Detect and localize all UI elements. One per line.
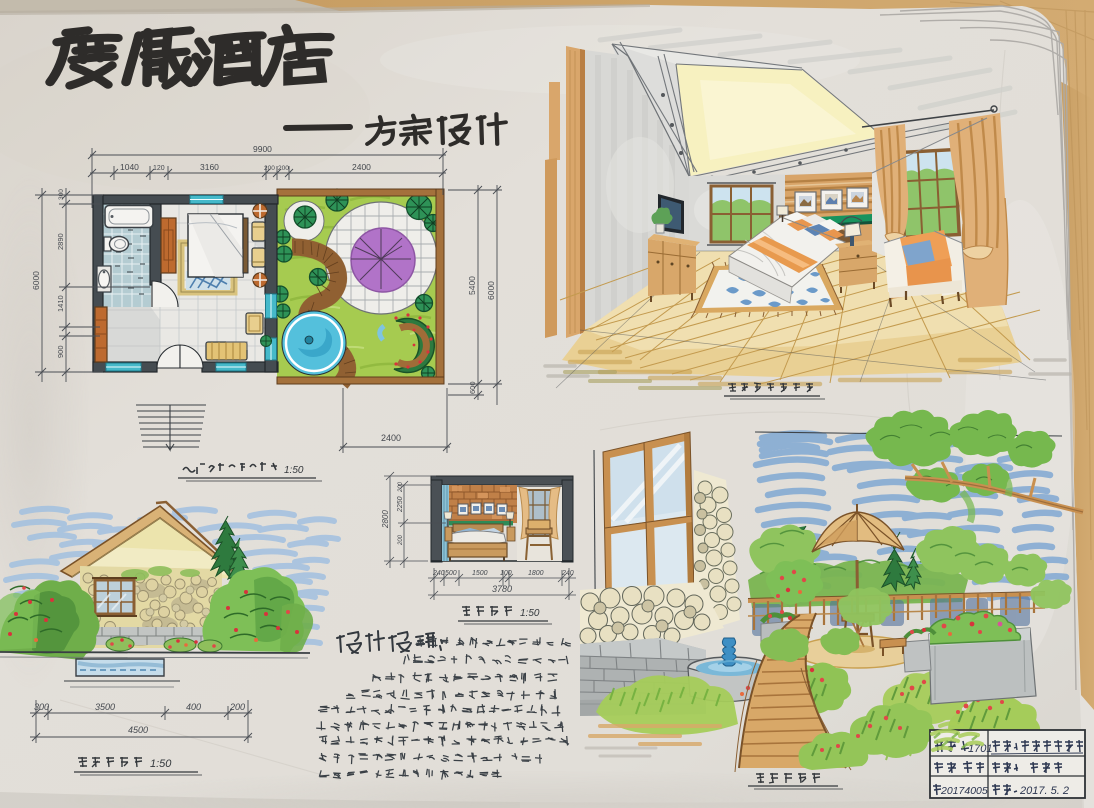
- svg-text:100: 100: [500, 570, 512, 577]
- svg-text:3780: 3780: [492, 584, 512, 594]
- svg-text:6000: 6000: [31, 271, 41, 290]
- svg-text:240: 240: [432, 570, 445, 577]
- svg-text:500: 500: [445, 570, 457, 577]
- svg-text:1:50: 1:50: [284, 465, 304, 476]
- svg-text:20174005: 20174005: [940, 785, 988, 797]
- svg-text:1410: 1410: [56, 295, 65, 312]
- svg-text:3500: 3500: [95, 702, 115, 712]
- svg-text:6000: 6000: [486, 281, 496, 300]
- svg-text:1500: 1500: [472, 570, 488, 577]
- svg-text:200: 200: [229, 702, 245, 712]
- svg-text:200: 200: [278, 165, 289, 172]
- svg-text:5400: 5400: [467, 276, 477, 295]
- svg-text:120: 120: [153, 165, 165, 172]
- svg-text:400: 400: [186, 702, 201, 712]
- svg-text:2800: 2800: [381, 510, 390, 529]
- svg-text:4500: 4500: [128, 725, 148, 735]
- svg-text:1800: 1800: [528, 570, 544, 577]
- svg-text:200: 200: [264, 165, 275, 172]
- svg-text:9900: 9900: [253, 144, 272, 154]
- svg-text:200: 200: [398, 534, 404, 546]
- svg-text:300: 300: [58, 189, 65, 200]
- svg-text:240: 240: [561, 570, 574, 577]
- svg-text:2250: 2250: [397, 496, 404, 513]
- svg-text:2400: 2400: [352, 162, 371, 172]
- svg-text:900: 900: [56, 345, 65, 358]
- svg-text:1:50: 1:50: [520, 608, 540, 619]
- svg-text:3160: 3160: [200, 162, 219, 172]
- svg-text:1:50: 1:50: [150, 758, 172, 770]
- svg-text:2400: 2400: [381, 433, 401, 443]
- svg-text:2017. 5. 2: 2017. 5. 2: [1019, 785, 1069, 797]
- svg-text:600: 600: [468, 381, 477, 394]
- svg-text:2890: 2890: [56, 233, 65, 250]
- svg-text:1040: 1040: [120, 162, 139, 172]
- svg-text:300: 300: [34, 702, 49, 712]
- svg-text:200: 200: [398, 481, 404, 493]
